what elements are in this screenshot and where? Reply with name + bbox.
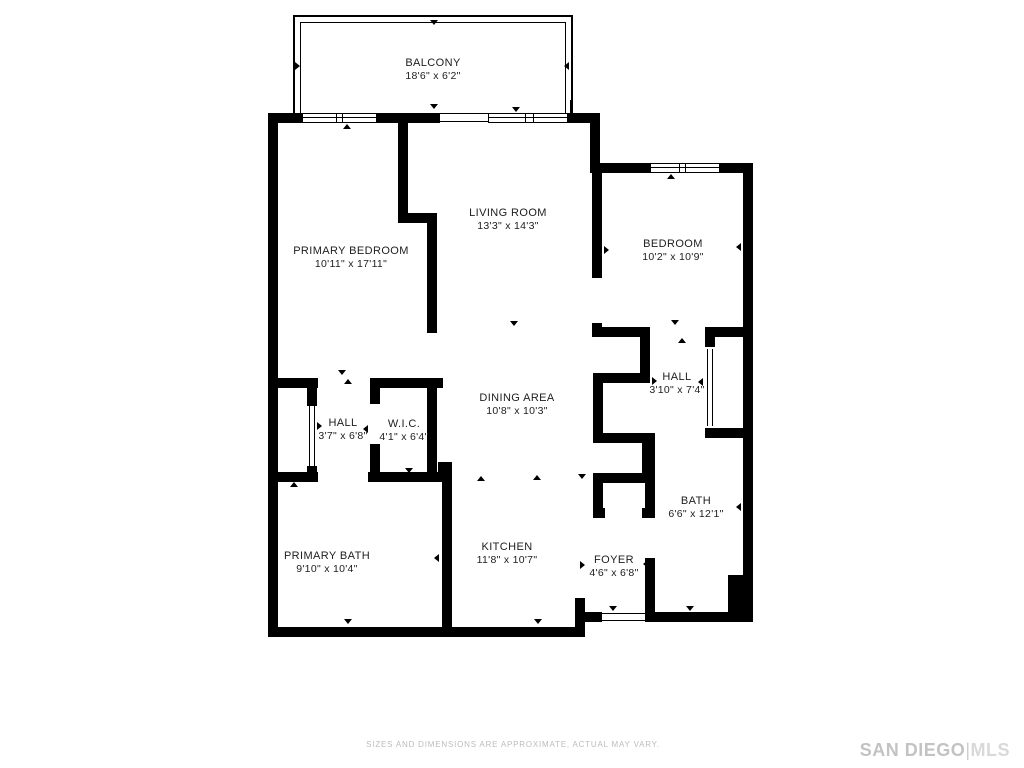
wall — [442, 475, 452, 637]
room-label-bedroom: BEDROOM10'2" x 10'9" — [642, 238, 704, 264]
room-name: LIVING ROOM — [469, 207, 547, 220]
dimension-tick — [405, 468, 413, 473]
room-label-balcony: BALCONY18'6" x 6'2" — [405, 57, 460, 83]
wall — [593, 508, 605, 518]
wall — [600, 163, 650, 173]
door-line — [440, 113, 488, 114]
dimension-tick — [678, 338, 686, 343]
dimension-tick — [428, 294, 433, 302]
door-line — [602, 613, 645, 614]
dimension-tick — [533, 475, 541, 480]
room-name: BATH — [668, 495, 723, 508]
dimension-tick — [512, 107, 520, 112]
room-dimensions: 11'8" x 10'7" — [477, 554, 538, 567]
dimension-tick — [477, 476, 485, 481]
dimension-tick — [344, 619, 352, 624]
door-line — [309, 406, 310, 466]
room-dimensions: 9'10" x 10'4" — [284, 563, 370, 576]
room-name: PRIMARY BEDROOM — [293, 245, 409, 258]
dimension-tick — [578, 474, 586, 479]
door-line — [314, 406, 315, 466]
wall — [705, 428, 747, 438]
wall — [728, 575, 753, 622]
dimension-tick — [271, 294, 276, 302]
wall — [377, 113, 440, 123]
dimension-tick — [564, 62, 569, 70]
dimension-tick — [343, 124, 351, 129]
wall — [645, 433, 655, 518]
dimension-tick — [580, 561, 585, 569]
window-mullion — [336, 114, 337, 122]
room-label-hall-right: HALL3'10" x 7'4" — [649, 371, 704, 397]
dimension-tick — [290, 482, 298, 487]
room-label-kitchen: KITCHEN11'8" x 10'7" — [477, 541, 538, 567]
room-name: HALL — [318, 417, 367, 430]
room-name: FOYER — [589, 554, 638, 567]
room-name: PRIMARY BATH — [284, 550, 370, 563]
room-dimensions: 3'7" x 6'8" — [318, 430, 367, 443]
room-label-hall-left: HALL3'7" x 6'8" — [318, 417, 367, 443]
wall — [645, 612, 728, 622]
dimension-tick — [534, 619, 542, 624]
door-line — [707, 349, 708, 426]
room-name: BEDROOM — [642, 238, 704, 251]
dimension-tick — [667, 174, 675, 179]
dimension-tick — [434, 554, 439, 562]
dimension-tick — [344, 379, 352, 384]
dimension-tick — [430, 20, 438, 25]
wall — [583, 612, 602, 622]
brand-secondary: MLS — [971, 740, 1011, 760]
window-mullion — [525, 114, 526, 122]
wall — [592, 172, 602, 278]
room-dimensions: 4'6" x 6'8" — [589, 567, 638, 580]
dimension-tick — [405, 381, 413, 386]
room-dimensions: 10'2" x 10'9" — [642, 251, 704, 264]
wall — [370, 378, 380, 404]
window — [302, 113, 377, 123]
room-label-primary-bedroom: PRIMARY BEDROOM10'11" x 17'11" — [293, 245, 409, 271]
wall — [593, 383, 603, 438]
room-dimensions: 10'8" x 10'3" — [479, 405, 554, 418]
dimension-tick — [736, 243, 741, 251]
dimension-tick — [510, 321, 518, 326]
wall — [370, 444, 380, 482]
window — [650, 163, 720, 173]
brand-primary: SAN DIEGO — [860, 740, 966, 760]
wall — [268, 627, 585, 637]
dimension-tick — [736, 503, 741, 511]
floor-plan: BALCONY18'6" x 6'2"LIVING ROOM13'3" x 14… — [0, 0, 1024, 768]
room-label-dining-area: DINING AREA10'8" x 10'3" — [479, 392, 554, 418]
door-line — [293, 100, 295, 113]
dimension-tick — [295, 62, 300, 70]
wall — [427, 213, 437, 333]
room-name: HALL — [649, 371, 704, 384]
dimension-tick — [271, 557, 276, 565]
room-label-foyer: FOYER4'6" x 6'8" — [589, 554, 638, 580]
wall — [268, 472, 318, 482]
wall — [590, 113, 600, 173]
wall — [593, 473, 652, 483]
door-line — [570, 100, 573, 113]
door-line — [440, 121, 488, 122]
dimension-tick — [430, 104, 438, 109]
window-mullion — [685, 164, 686, 172]
window-mullion — [679, 164, 680, 172]
door-line — [712, 349, 713, 426]
wall — [398, 123, 408, 223]
room-name: BALCONY — [405, 57, 460, 70]
dimension-tick — [686, 606, 694, 611]
room-name: KITCHEN — [477, 541, 538, 554]
room-name: W.I.C. — [379, 418, 428, 431]
room-name: DINING AREA — [479, 392, 554, 405]
wall — [705, 327, 715, 347]
room-dimensions: 3'10" x 7'4" — [649, 384, 704, 397]
room-dimensions: 4'1" x 6'4" — [379, 431, 428, 444]
window-mullion — [533, 114, 534, 122]
room-dimensions: 6'6" x 12'1" — [668, 508, 723, 521]
disclaimer-text: SIZES AND DIMENSIONS ARE APPROXIMATE, AC… — [366, 740, 660, 749]
wall — [307, 380, 317, 406]
room-dimensions: 18'6" x 6'2" — [405, 70, 460, 83]
door-line — [602, 620, 645, 621]
room-dimensions: 13'3" x 14'3" — [469, 220, 547, 233]
window — [488, 113, 568, 123]
dimension-tick — [604, 246, 609, 254]
dimension-tick — [609, 606, 617, 611]
room-label-living-room: LIVING ROOM13'3" x 14'3" — [469, 207, 547, 233]
room-label-primary-bath: PRIMARY BATH9'10" x 10'4" — [284, 550, 370, 576]
brand-logo: SAN DIEGO|MLS — [860, 740, 1010, 761]
wall — [743, 163, 753, 580]
dimension-tick — [643, 560, 648, 568]
room-label-bath: BATH6'6" x 12'1" — [668, 495, 723, 521]
dimension-tick — [671, 320, 679, 325]
dimension-tick — [338, 370, 346, 375]
room-dimensions: 10'11" x 17'11" — [293, 258, 409, 271]
wall — [593, 373, 645, 383]
room-label-wic: W.I.C.4'1" x 6'4" — [379, 418, 428, 444]
window-mullion — [342, 114, 343, 122]
